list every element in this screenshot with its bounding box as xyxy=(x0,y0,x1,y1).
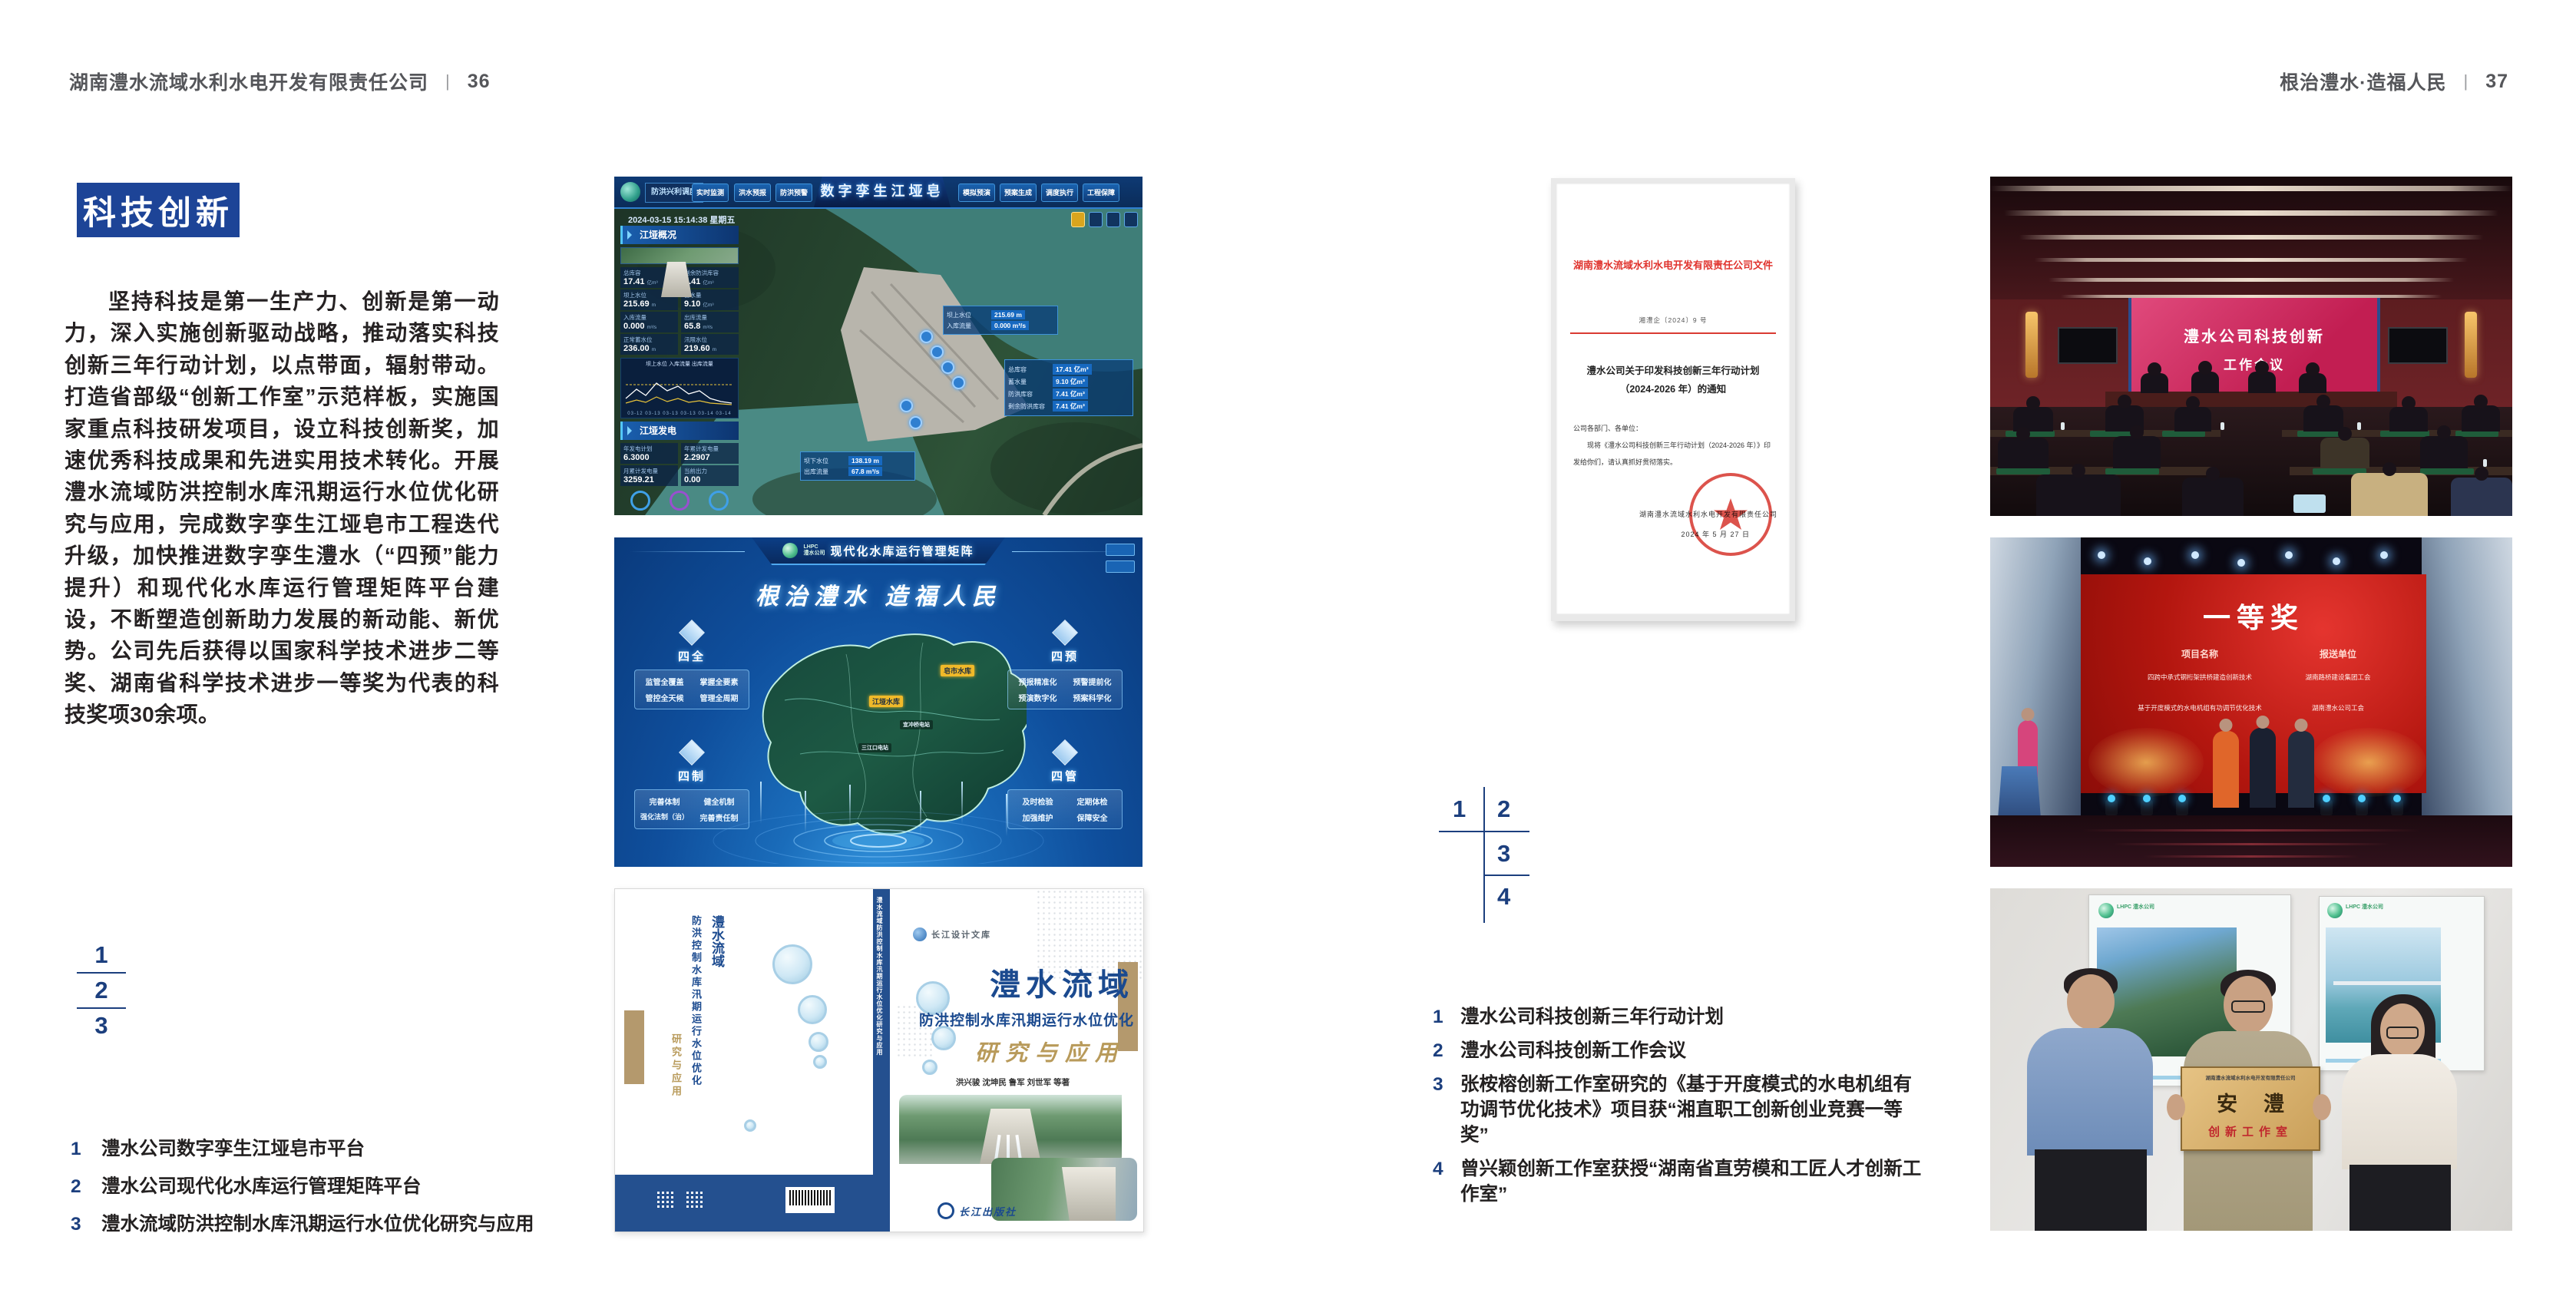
caption-text: 澧水公司现代化水库运行管理矩阵平台 xyxy=(101,1174,422,1199)
publisher-name: 长江出版社 xyxy=(959,1204,1017,1218)
figure-book-cover: 澧水流域 防洪控制水库汛期运行水位优化 研究与应用 澧水流域防洪控制水库汛期运行… xyxy=(614,888,1144,1232)
water-droplet xyxy=(772,944,812,984)
section-title-badge: 科技创新 xyxy=(77,183,240,237)
plaque-title: 安澧 xyxy=(2182,1087,2319,1117)
official-document-photo: 湖南澧水流域水利水电开发有限责任公司文件 湘澧企〔2024〕9 号 澧水公司关于… xyxy=(1551,178,1795,621)
wall-display xyxy=(2058,327,2118,364)
water-droplet xyxy=(744,1119,756,1132)
water-droplet xyxy=(798,995,827,1024)
stage-light-fixture xyxy=(2176,800,2188,815)
gate-marker-icon xyxy=(909,416,922,429)
light-pillar xyxy=(760,782,762,824)
caption-number: 3 xyxy=(71,1212,101,1237)
body-paragraph: 坚持科技是第一生产力、创新是第一动力，深入实施创新驱动战略，推动落实科技创新三年… xyxy=(64,286,499,731)
tab-plan-generation: 预案生成 xyxy=(1000,184,1037,202)
map-label-yichongqiao: 宜冲桥电站 xyxy=(900,720,933,729)
dashboard-header-bar: 防洪兴利调度 实时监测 洪水预报 防洪预警 数字孪生江垭皂市 模拟预演 预案生成… xyxy=(614,177,1143,209)
tissue-box xyxy=(2293,494,2326,513)
spotlight xyxy=(2333,557,2340,565)
gate-marker-icon xyxy=(920,330,933,343)
front-title-sub: 防洪控制水库汛期运行水位优化 xyxy=(898,1009,1134,1030)
gate-marker-icon xyxy=(931,346,944,359)
stage-light-fixture xyxy=(2356,800,2368,815)
golden-glow xyxy=(2311,728,2426,797)
spotlight xyxy=(2191,551,2199,559)
front-title-main: 澧水流域 xyxy=(898,960,1134,1004)
tan-accent-block xyxy=(624,1010,644,1084)
caption-row: 2 澧水公司科技创新工作会议 xyxy=(1433,1038,1943,1063)
chart-lines xyxy=(623,368,735,408)
index-divider xyxy=(1483,875,1529,876)
left-index-2: 2 xyxy=(77,974,126,1007)
platform-rings xyxy=(694,798,1063,864)
group-items: 预报精准化 预警提前化 预演数字化 预案科学化 xyxy=(1007,670,1123,709)
attendee-silhouette xyxy=(2462,405,2500,431)
stat-cell: 年发电计划6.3000 xyxy=(620,443,678,464)
document-number: 湘澧企〔2024〕9 号 xyxy=(1556,316,1790,325)
dam-shape xyxy=(1062,1167,1116,1221)
company-logo-icon xyxy=(782,543,798,558)
caption-row: 2 澧水公司现代化水库运行管理矩阵平台 xyxy=(71,1174,562,1199)
lhpc-logo-text: LHPC 澧水公司 xyxy=(2117,904,2154,911)
locate-icon xyxy=(1106,212,1120,227)
right-captions: 1 澧水公司科技创新三年行动计划 2 澧水公司科技创新工作会议 3 张桉榕创新工… xyxy=(1433,1004,1943,1219)
hand-holding-plaque xyxy=(2167,1094,2185,1120)
left-figure-index: 1 2 3 xyxy=(77,938,126,1043)
series-badge: 长江设计文库 xyxy=(913,927,991,941)
column-unit-header: 报送单位 xyxy=(2273,647,2403,660)
ceiling-light xyxy=(2019,235,2483,240)
spine-title: 澧水流域防洪控制水库汛期运行水位优化研究与应用 xyxy=(875,897,884,1227)
winner-dark-suit xyxy=(2288,731,2314,808)
award-row-project: 基于开度模式的水电机组有功调节优化技术 xyxy=(2127,703,2273,713)
attendee-silhouette xyxy=(2320,438,2369,468)
panel-overview-title: 江垭概况 xyxy=(620,226,739,244)
photo-innovation-meeting: 澧水公司科技创新 工作会议 xyxy=(1990,177,2512,516)
caption-number: 4 xyxy=(1433,1156,1460,1207)
figure-matrix-platform: LHPC 澧水公司 现代化水库运行管理矩阵 根治澧水 造福人民 皂市水库 江垭水… xyxy=(614,537,1143,867)
right-index-2: 2 xyxy=(1497,795,1510,823)
water-bottle xyxy=(2483,459,2487,467)
chart-legend: 坝上水位 入库流量 出库流量 xyxy=(623,360,736,368)
plaque-subtitle: 创新工作室 xyxy=(2182,1123,2319,1139)
power-stats-grid: 年发电计划6.3000 年累计发电量2.2907 月累计发电量3259.21 当… xyxy=(620,443,739,486)
slogan-calligraphy: 根治澧水 造福人民 xyxy=(614,577,1143,611)
map-label-sanjiangkou: 三江口电站 xyxy=(858,743,891,752)
attendee-silhouette xyxy=(2174,407,2211,431)
stage-light-fixture xyxy=(2320,800,2333,815)
document-body-text: 现将《澧水公司科技创新三年行动计划（2024-2026 年）》印发给你们，请认真… xyxy=(1573,437,1774,471)
generator-gauges xyxy=(620,489,739,512)
stat-cell: 当前出力0.00 xyxy=(681,465,739,486)
group-siquan: 四全 监管全覆盖 掌握全要素 管控全天候 管理全周期 xyxy=(634,623,749,709)
left-data-panel: 江垭概况 总库容17.41亿m³ 剩余防洪库容7.41亿m³ 坝上水位215.6… xyxy=(620,226,739,512)
caption-text: 澧水公司科技创新三年行动计划 xyxy=(1460,1004,1724,1030)
award-title: 一等奖 xyxy=(2081,596,2426,636)
dam-shape xyxy=(980,1109,1041,1164)
tab-engineering: 工程保障 xyxy=(1083,184,1119,202)
desk-mat xyxy=(2162,431,2205,437)
light-pillar xyxy=(849,785,851,827)
publisher-mark: 长江出版社 xyxy=(937,1202,1017,1219)
light-pillar xyxy=(1006,794,1007,836)
caption-row: 3 张桉榕创新工作室研究的《基于开度模式的水电机组有功调节优化技术》项目获“湘直… xyxy=(1433,1072,1943,1148)
person-head xyxy=(2067,974,2115,1030)
attendee-silhouette xyxy=(2420,436,2468,468)
back-title-main: 澧水流域 xyxy=(707,915,726,1038)
person-silhouette xyxy=(2299,373,2326,393)
stat-cell: 入库流量0.000m³/s xyxy=(620,312,678,332)
cube-icon xyxy=(679,739,705,765)
right-index-1: 1 xyxy=(1453,795,1466,823)
caption-text: 曾兴颖创新工作室获授“湖南省直劳模和工匠人才创新工作室” xyxy=(1460,1156,1929,1207)
back-title-tail: 研究与应用 xyxy=(669,1033,683,1118)
bridge-shape xyxy=(2333,981,2441,985)
caption-number: 2 xyxy=(1433,1038,1460,1063)
glasses-icon xyxy=(2386,1027,2419,1039)
matrix-title: 现代化水库运行管理矩阵 xyxy=(830,543,974,559)
map-label-jiangya: 江垭水库 xyxy=(869,696,903,707)
map-label-zaoshi: 皂市水库 xyxy=(941,665,974,676)
attendee-silhouette xyxy=(2451,478,2512,516)
stat-cell: 出库流量65.8m³/s xyxy=(681,312,739,332)
glasses-icon xyxy=(2231,1000,2265,1013)
series-logo-icon xyxy=(913,927,927,941)
document-paper: 湖南澧水流域水利水电开发有限责任公司文件 湘澧企〔2024〕9 号 澧水公司关于… xyxy=(1556,184,1790,614)
water-droplet xyxy=(809,1032,828,1052)
attendee-silhouette xyxy=(2113,436,2161,468)
tab-realtime-monitor: 实时监测 xyxy=(692,184,729,202)
water-droplet xyxy=(813,1055,827,1069)
desk-mat xyxy=(2006,431,2055,437)
ceiling-light xyxy=(1990,186,2512,191)
qr-code xyxy=(655,1190,675,1210)
gate-marker-icon xyxy=(952,376,965,389)
photo-innovation-studio-plaque: LHPC 澧水公司 LHPC 澧水公司 xyxy=(1990,888,2512,1231)
caption-number: 3 xyxy=(1433,1072,1460,1148)
stage-light-fixture xyxy=(2105,800,2118,815)
desk-mat xyxy=(1996,468,2050,474)
stat-cell: 剩余防洪库容7.41亿m³ xyxy=(681,267,739,288)
ceiling-light xyxy=(2049,278,2454,282)
innovation-studio-plaque: 湖南澧水流域水利水电开发有限责任公司 安澧 创新工作室 xyxy=(2181,1066,2320,1151)
light-pillar xyxy=(805,791,806,833)
column-project-header: 项目名称 xyxy=(2135,647,2265,660)
floor-reflection xyxy=(2082,829,2420,832)
alert-icon xyxy=(1071,212,1085,227)
caption-row: 1 澧水公司数字孪生江垭皂市平台 xyxy=(71,1136,562,1162)
back-title-sub: 防洪控制水库汛期运行水位优化 xyxy=(689,915,703,1099)
tab-dispatch: 调度执行 xyxy=(1041,184,1078,202)
index-divider xyxy=(1483,787,1485,923)
light-pillar xyxy=(961,782,963,824)
caption-row: 3 澧水流域防洪控制水库汛期运行水位优化研究与应用 xyxy=(71,1212,562,1237)
upstream-water-tag: 坝上水位215.69 m 入库流量0.000 m³/s xyxy=(943,306,1058,335)
caption-text: 澧水流域防洪控制水库汛期运行水位优化研究与应用 xyxy=(101,1212,534,1237)
right-index-3: 3 xyxy=(1497,840,1510,868)
right-page-header: 根治澧水·造福人民 | 37 xyxy=(2280,68,2508,95)
document-title: 澧水公司关于印发科技创新三年行动计划 （2024-2026 年）的通知 xyxy=(1556,362,1790,398)
water-bottle xyxy=(2061,422,2065,430)
book-spine: 澧水流域防洪控制水库汛期运行水位优化研究与应用 xyxy=(873,889,890,1232)
right-header-page-number: 37 xyxy=(2485,71,2508,93)
desk-mat xyxy=(2420,468,2474,474)
front-title-tail: 研究与应用 xyxy=(898,1035,1125,1067)
gauge-icon xyxy=(709,491,729,511)
attendee-silhouette xyxy=(2182,478,2244,516)
tab-flood-warning: 防洪预警 xyxy=(775,184,812,202)
document-red-header: 湖南澧水流域水利水电开发有限责任公司文件 xyxy=(1564,257,1782,272)
left-captions: 1 澧水公司数字孪生江垭皂市平台 2 澧水公司现代化水库运行管理矩阵平台 3 澧… xyxy=(71,1136,562,1249)
spotlight xyxy=(2144,557,2151,565)
caption-text: 张桉榕创新工作室研究的《基于开度模式的水电机组有功调节优化技术》项目获“湘直职工… xyxy=(1460,1072,1929,1148)
caption-number: 1 xyxy=(71,1136,101,1162)
person-silhouette xyxy=(2248,372,2276,393)
downstream-water-tag: 坝下水位138.19 m 出库流量67.8 m³/s xyxy=(800,451,915,481)
dam-thumbnail xyxy=(620,247,739,264)
tab-flood-forecast: 洪水预报 xyxy=(734,184,771,202)
ceiling-light xyxy=(2035,258,2468,262)
person-trousers xyxy=(2349,1165,2451,1231)
spotlight xyxy=(2285,551,2293,559)
left-header-page-number: 36 xyxy=(468,71,491,93)
left-index-1: 1 xyxy=(77,938,126,972)
authors-line: 洪兴骏 沈坤民 鲁军 刘世军 等著 xyxy=(898,1076,1128,1088)
tab-simulation: 模拟预演 xyxy=(958,184,995,202)
series-badge-text: 长江设计文库 xyxy=(931,928,991,941)
water-bottle xyxy=(2221,422,2224,430)
red-divider-line xyxy=(1570,332,1776,334)
stage-light-fixture xyxy=(2391,800,2403,815)
caption-row: 1 澧水公司科技创新三年行动计划 xyxy=(1433,1004,1943,1030)
gauge-icon xyxy=(670,491,689,511)
water-bottle xyxy=(2357,422,2361,430)
header-line xyxy=(630,551,745,552)
wall-lamp xyxy=(2025,312,2038,378)
book-spread-page: 湖南澧水流域水利水电开发有限责任公司 | 36 根治澧水·造福人民 | 37 科… xyxy=(0,0,2576,1306)
person-trousers xyxy=(2035,1149,2147,1231)
caption-number: 1 xyxy=(1433,1004,1460,1030)
photo-award-ceremony: 一等奖 项目名称 报送单位 四跨中承式钢桁架拱桥建造创新技术 湖南路桥建设集团工… xyxy=(1990,537,2512,867)
left-page-header: 湖南澧水流域水利水电开发有限责任公司 | 36 xyxy=(69,68,491,95)
chart-x-ticks: 03-12 03-13 03-13 03-13 03-14 03-14 xyxy=(623,412,736,416)
person-torso-blue-polo xyxy=(2027,1028,2153,1156)
caption-text: 澧水公司科技创新工作会议 xyxy=(1460,1038,1686,1063)
wall-display xyxy=(2388,327,2448,364)
spotlight xyxy=(2098,551,2105,559)
stat-cell: 汛限水位219.60m xyxy=(681,334,739,355)
dashboard-timestamp: 2024-03-15 15:14:38 星期五 xyxy=(628,213,735,226)
floor-reflection xyxy=(2113,843,2389,845)
stat-cell: 年累计发电量2.2907 xyxy=(681,443,739,464)
screen-title-line1: 澧水公司科技创新 xyxy=(2131,324,2377,346)
caption-number: 2 xyxy=(71,1174,101,1199)
wall-lamp xyxy=(2465,312,2477,378)
stat-cell: 正常蓄水位236.00m xyxy=(620,334,678,355)
golden-glow xyxy=(2088,728,2204,797)
left-index-3: 3 xyxy=(77,1009,126,1043)
plaque-org-line: 湖南澧水流域水利水电开发有限责任公司 xyxy=(2182,1073,2319,1081)
desk-mat xyxy=(2105,468,2159,474)
settings-icon xyxy=(1124,212,1138,227)
cube-icon xyxy=(679,620,705,646)
caption-text: 澧水公司数字孪生江垭皂市平台 xyxy=(101,1136,365,1162)
cube-icon xyxy=(1052,739,1078,765)
cube-icon xyxy=(1052,620,1078,646)
hand-holding-plaque xyxy=(2313,1094,2331,1120)
attendee-silhouette xyxy=(2389,407,2428,431)
official-seal xyxy=(1685,469,1776,560)
person-silhouette xyxy=(2191,372,2219,393)
winner-orange-jacket xyxy=(2213,731,2239,808)
person-torso-white-tee xyxy=(2342,1054,2457,1169)
light-pillar xyxy=(920,791,921,833)
left-header-company: 湖南澧水流域水利水电开发有限责任公司 xyxy=(69,68,428,95)
attendee-silhouette xyxy=(1998,438,2049,468)
attendee-silhouette xyxy=(2303,405,2343,431)
figure-digital-twin-platform: 防洪兴利调度 实时监测 洪水预报 防洪预警 数字孪生江垭皂市 模拟预演 预案生成… xyxy=(614,177,1143,515)
dam-photo xyxy=(899,1095,1122,1164)
ceiling-light xyxy=(2004,210,2498,216)
matrix-header: LHPC 澧水公司 现代化水库运行管理矩阵 xyxy=(752,537,1005,565)
lhpc-logo-text: LHPC 澧水公司 xyxy=(2346,904,2383,911)
caption-row: 4 曾兴颖创新工作室获授“湖南省直劳模和工匠人才创新工作室” xyxy=(1433,1156,1943,1207)
gate-marker-icon xyxy=(900,399,913,412)
company-logo-text: LHPC 澧水公司 xyxy=(803,544,825,557)
publisher-logo-icon xyxy=(937,1202,954,1219)
dashboard-title: 数字孪生江垭皂市 xyxy=(814,177,951,207)
gauge-icon xyxy=(630,491,650,511)
qr-code xyxy=(684,1190,704,1210)
stage-light-fixture xyxy=(2141,800,2153,815)
stage-floor xyxy=(1990,815,2512,867)
award-row-unit: 湖南路桥建设集团工会 xyxy=(2265,673,2411,682)
panel-power-title: 江垭发电 xyxy=(620,422,739,440)
desk-mat xyxy=(2380,431,2429,437)
dashboard-toolbar-icons xyxy=(1071,212,1138,227)
stat-cell: 月累计发电量3259.21 xyxy=(620,465,678,486)
capacity-tag: 总库容17.41 亿m³ 蓄水量9.10 亿m³ 防洪库容7.41 亿m³ 剩余… xyxy=(1004,359,1133,416)
presenter-dark-suit xyxy=(2250,728,2276,808)
screen-title-line2: 工作会议 xyxy=(2131,354,2377,373)
layers-icon xyxy=(1089,212,1103,227)
document-body: 公司各部门、各单位： 现将《澧水公司科技创新三年行动计划（2024-2026 年… xyxy=(1573,420,1774,471)
spotlight xyxy=(2380,551,2388,559)
group-items: 监管全覆盖 掌握全要素 管控全天候 管理全周期 xyxy=(634,670,749,709)
water-level-chart: 坝上水位 入库流量 出库流量 03-12 03-13 03-13 03-13 0… xyxy=(620,358,739,418)
attendee-silhouette xyxy=(2036,474,2121,516)
document-salutation: 公司各部门、各单位： xyxy=(1573,420,1774,437)
person-silhouette xyxy=(2141,373,2168,393)
dashboard-logo-icon xyxy=(620,182,640,202)
right-header-separator: | xyxy=(2446,71,2485,91)
award-row-unit: 湖南澧水公司工会 xyxy=(2265,703,2411,713)
group-siyu: 四预 预报精准化 预警提前化 预演数字化 预案科学化 xyxy=(1007,623,1123,709)
left-header-separator: | xyxy=(428,71,468,91)
right-index-4: 4 xyxy=(1497,883,1510,911)
index-divider xyxy=(1439,831,1529,832)
spotlight xyxy=(2237,559,2245,567)
floor-reflection xyxy=(2144,855,2359,858)
lhpc-logo-icon xyxy=(2327,903,2343,918)
barcode xyxy=(785,1187,835,1213)
fullscreen-button xyxy=(1106,544,1135,556)
attendee-silhouette xyxy=(2351,473,2428,516)
lhpc-logo-icon xyxy=(2098,903,2114,918)
right-header-motto: 根治澧水·造福人民 xyxy=(2280,68,2446,95)
menu-button xyxy=(1106,560,1135,573)
gate-marker-icon xyxy=(941,361,954,374)
award-row-project: 四跨中承式钢桁架拱桥建造创新技术 xyxy=(2127,673,2273,682)
